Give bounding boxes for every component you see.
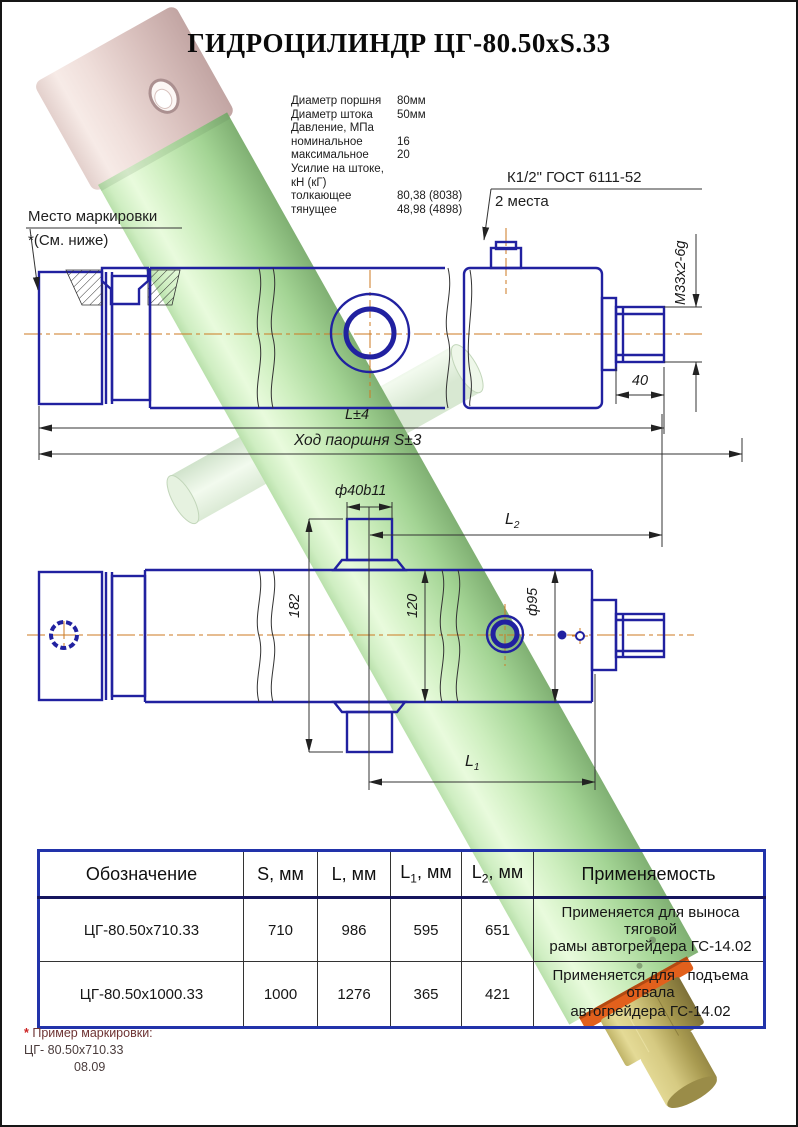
spec-row: Усилие на штоке, кН (кГ) [291,163,462,190]
col-designation: Обозначение [39,851,244,898]
cell-l: 1276 [318,962,391,1028]
spec-block: Диаметр поршня80мм Диаметр штока50мм Дав… [291,95,462,217]
eye-block-outline-2 [39,572,102,700]
cell-application: Применяется для подъема отвалаавтогрейде… [534,962,765,1028]
spec-row: Диаметр поршня80мм [291,95,462,109]
spec-row: номинальное16 [291,136,462,150]
dim-l2: L2 [505,511,519,531]
size-table: Обозначение S, мм L, мм L1, мм L2, мм Пр… [37,849,766,1029]
thread-socket [102,268,148,304]
marking-callout-line1: Место маркировки [28,208,157,225]
cell-l1: 595 [391,898,462,962]
cell-l2: 421 [462,962,534,1028]
cell-designation: ЦГ-80.50х710.33 [39,898,244,962]
hatch-section-left [66,270,102,305]
cell-l: 986 [318,898,391,962]
dim-pin-dia: ф40b11 [335,483,386,499]
spec-row: тянущее48,98 (4898) [291,204,462,218]
dim-body-width: 182 [287,594,303,618]
dim-overall-length: L±4 [302,407,412,423]
cell-l1: 365 [391,962,462,1028]
head-section-outline [464,268,602,408]
col-l2: L2, мм [462,851,534,898]
footnote-line3: 08.09 [74,1060,105,1074]
dim-thread: M33x2-6g [673,241,689,305]
spec-row: Диаметр штока50мм [291,109,462,123]
footnote-line1: * Пример маркировки: [24,1026,153,1040]
drawing-page: ГИДРОЦИЛИНДР ЦГ-80.50xS.33 Диаметр поршн… [0,0,798,1127]
vent-dot [558,631,567,640]
port-callout-line2: 2 места [495,193,549,210]
dim-rod-length: 40 [614,373,666,389]
col-l1: L1, мм [391,851,462,898]
dim-port-span: 120 [405,594,421,618]
col-l: L, мм [318,851,391,898]
col-s: S, мм [244,851,318,898]
cell-designation: ЦГ-80.50х1000.33 [39,962,244,1028]
size-table-header: Обозначение S, мм L, мм L1, мм L2, мм Пр… [39,851,765,898]
dim-l1: L1 [465,753,479,773]
dim-stroke: Ход паоршня S±3 [294,432,421,450]
table-row: ЦГ-80.50х710.33 710 986 595 651 Применяе… [39,898,765,962]
cell-s: 1000 [244,962,318,1028]
spec-row: Давление, МПа [291,122,462,136]
cell-s: 710 [244,898,318,962]
spec-row: максимальное20 [291,149,462,163]
table-row: ЦГ-80.50х1000.33 1000 1276 365 421 Приме… [39,962,765,1028]
cell-application: Применяется для выноса тяговойрамы автог… [534,898,765,962]
port-callout-line1: К1/2" ГОСТ 6111-52 [507,169,642,186]
footnote-line2: ЦГ- 80.50х710.33 [24,1043,123,1057]
page-title: ГИДРОЦИЛИНДР ЦГ-80.50xS.33 [2,28,796,59]
marking-callout-line2: *(См. ниже) [28,232,108,249]
dim-outer-dia: ф95 [525,588,541,616]
spec-row: толкающее80,38 (8038) [291,190,462,204]
cell-l2: 651 [462,898,534,962]
vent-circle [576,632,584,640]
col-application: Применяемость [534,851,765,898]
